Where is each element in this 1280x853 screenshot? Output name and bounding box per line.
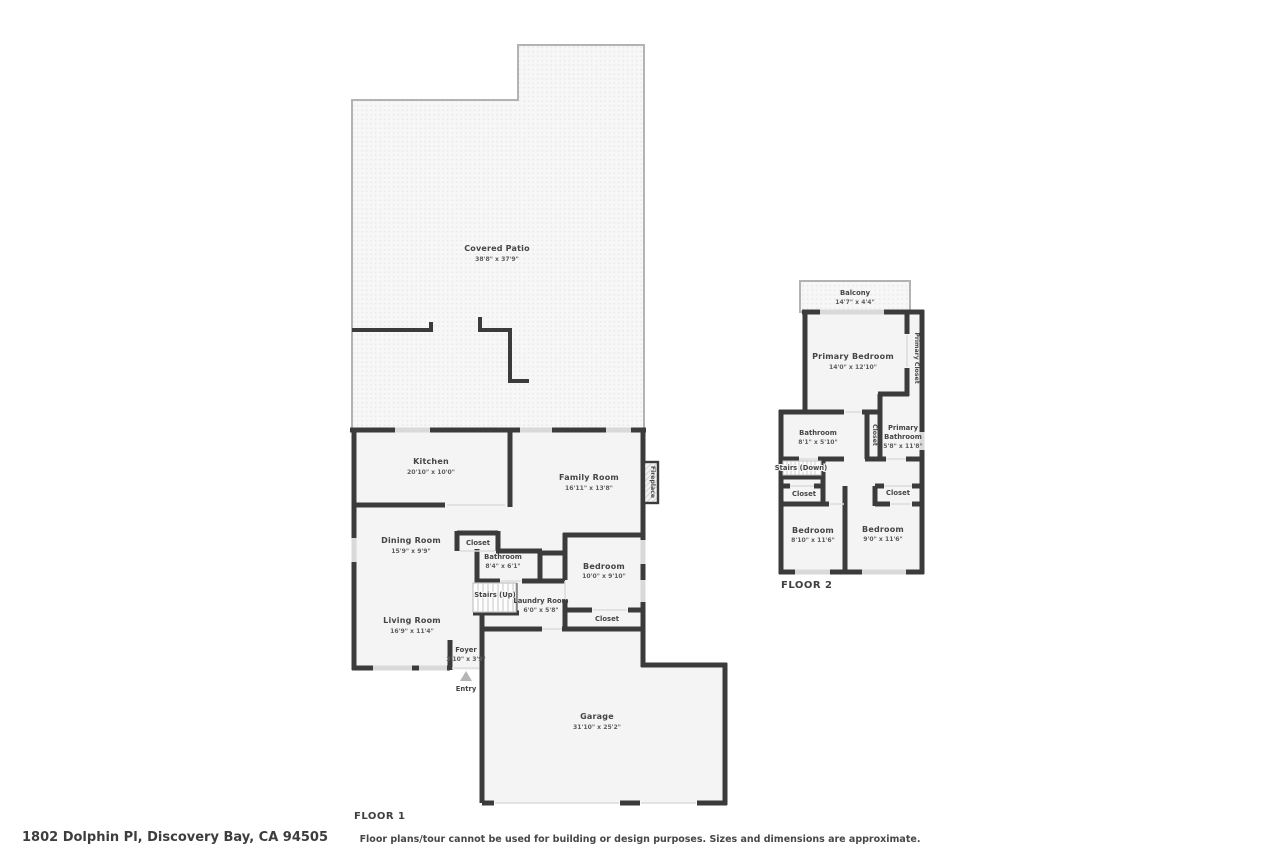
room-label-garage: Garage (580, 712, 614, 721)
room-label-covered-patio: Covered Patio (464, 244, 530, 253)
room-label-balcony: Balcony (840, 289, 871, 297)
room-label-closet-right: Closet (886, 489, 911, 497)
room-label-primary-bedroom: Primary Bedroom (812, 352, 894, 361)
room-label-laundry: Laundry Room (513, 597, 568, 605)
floor2-title: FLOOR 2 (781, 580, 833, 591)
room-dims-bedroom3: 9'0" x 11'6" (863, 536, 902, 543)
room-dims-primary-bathroom: 5'8" x 11'8" (883, 443, 922, 450)
floorplan-page: Fireplace Covered Patio 38'8" x 37'9" Ki… (0, 0, 1280, 853)
room-label-kitchen: Kitchen (413, 457, 449, 466)
disclaimer-text: Floor plans/tour cannot be used for buil… (0, 834, 1280, 845)
room-label-bedroom2: Bedroom (792, 526, 834, 535)
room-label-family-room: Family Room (559, 473, 619, 482)
floorplan-canvas: Fireplace Covered Patio 38'8" x 37'9" Ki… (0, 0, 1280, 853)
entry-arrow-icon (460, 671, 472, 681)
room-dims-garage: 31'10" x 25'2" (573, 724, 621, 731)
room-dims-bedroom2: 8'10" x 11'6" (791, 537, 835, 544)
stairs-down-label: Stairs (Down) (775, 464, 827, 472)
covered-patio-area (352, 45, 644, 430)
room-label-bedroom1: Bedroom (583, 562, 625, 571)
room-label-primary-bathroom-2: Bathroom (884, 433, 922, 441)
fireplace: Fireplace (644, 462, 658, 503)
room-label-bathroom2: Bathroom (799, 429, 837, 437)
room-label-closet-left: Closet (792, 490, 817, 498)
room-label-primary-closet: Primary Closet (913, 332, 920, 383)
room-label-dining-room: Dining Room (381, 536, 441, 545)
floor1-title: FLOOR 1 (354, 811, 406, 822)
room-label-primary-bathroom-1: Primary (888, 424, 919, 432)
room-label-bedroom1-closet: Closet (595, 615, 620, 623)
entry-label: Entry (456, 685, 477, 693)
room-label-hall-closet: Closet (466, 539, 491, 547)
room-dims-foyer: 3'10" x 3'9" (446, 656, 485, 663)
room-dims-bathroom: 8'4" x 6'1" (485, 563, 520, 570)
room-label-foyer: Foyer (455, 646, 477, 654)
room-dims-family-room: 16'11" x 13'8" (565, 485, 613, 492)
room-dims-dining-room: 15'9" x 9'9" (391, 548, 430, 555)
room-label-mid-closet: Closet (871, 424, 878, 446)
room-dims-bedroom1: 10'0" x 9'10" (582, 573, 626, 580)
room-label-bedroom3: Bedroom (862, 525, 904, 534)
room-label-living-room: Living Room (383, 616, 441, 625)
room-dims-bathroom2: 8'1" x 5'10" (798, 439, 837, 446)
room-dims-covered-patio: 38'8" x 37'9" (475, 256, 519, 263)
room-label-bathroom: Bathroom (484, 553, 522, 561)
room-dims-balcony: 14'7" x 4'4" (835, 299, 874, 306)
stairs-up-label: Stairs (Up) (474, 591, 515, 599)
room-dims-laundry: 6'0" x 5'8" (523, 607, 558, 614)
room-dims-living-room: 16'9" x 11'4" (390, 628, 434, 635)
room-dims-kitchen: 20'10" x 10'0" (407, 469, 455, 476)
fireplace-label: Fireplace (649, 466, 656, 498)
room-dims-primary-bedroom: 14'0" x 12'10" (829, 364, 877, 371)
